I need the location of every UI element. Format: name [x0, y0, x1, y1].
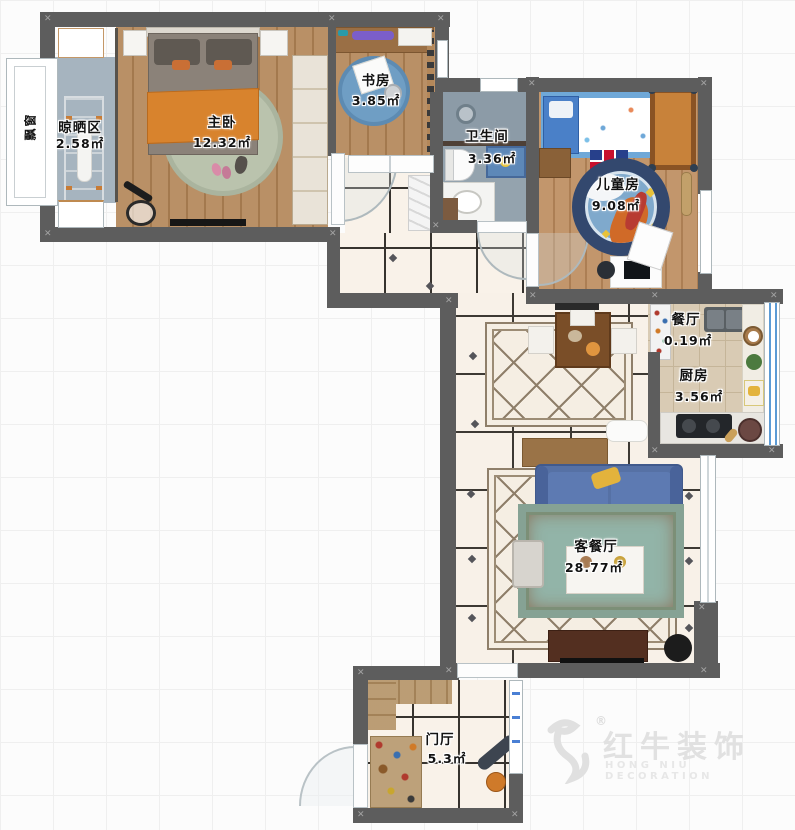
- rice-cooker: [738, 418, 762, 442]
- area-value: 2.58㎡: [56, 136, 104, 151]
- drying-window-bottom: [58, 200, 104, 228]
- golf-bag: [681, 172, 692, 216]
- study-east-window: [437, 40, 448, 78]
- wall-joint-mark: ✕: [768, 447, 776, 456]
- wall-joint-mark: ✕: [528, 80, 536, 89]
- highchair: [606, 420, 648, 442]
- dining-chair: [528, 326, 554, 354]
- desk-dumbbell: [338, 30, 348, 36]
- wall-joint-mark: ✕: [445, 667, 453, 676]
- area-value: 5.3㎡: [428, 751, 467, 766]
- window-line-master-west: [115, 28, 118, 202]
- clothes-rack: [126, 200, 156, 226]
- rack-hook: [66, 186, 72, 190]
- potted-plant: [746, 354, 762, 370]
- wall-hall-south: [330, 293, 458, 308]
- wall-joint-mark: ✕: [44, 15, 52, 24]
- sink-basin: [707, 310, 724, 329]
- area-value: 3.85㎡: [352, 93, 400, 108]
- foyer-wood-patch: [368, 680, 396, 730]
- table-setting: [586, 342, 600, 356]
- nightstand-left: [123, 30, 147, 56]
- wall-joint-mark: ✕: [445, 297, 453, 306]
- room-area-living: 28.77㎡: [565, 557, 623, 576]
- room-area-master: 12.32㎡: [193, 132, 251, 151]
- wall-kids-east-upper: [698, 77, 712, 194]
- wall-joint-mark: ✕: [357, 669, 365, 678]
- kids-bed-orange: [650, 88, 696, 170]
- wall-bath-east: [526, 77, 539, 233]
- wall-foyer-south: [353, 808, 523, 823]
- nightstand-right: [260, 30, 288, 56]
- wall-kitchen-west: [648, 352, 660, 458]
- wall-north: [40, 12, 450, 27]
- burner: [682, 419, 696, 433]
- burner: [706, 419, 720, 433]
- kids-pillow: [549, 101, 573, 118]
- area-value: 3.36㎡: [468, 151, 516, 166]
- foyer-window-tick: [512, 716, 520, 719]
- wall-joint-mark: ✕: [357, 811, 365, 820]
- area-value: 9.08㎡: [592, 198, 640, 213]
- wall-joint-mark: ✕: [44, 230, 52, 239]
- wall-master-south: [40, 227, 340, 242]
- wall-joint-mark: ✕: [651, 292, 659, 301]
- foyer-window-tick: [512, 692, 520, 695]
- room-area-bathroom: 3.36㎡: [468, 148, 516, 167]
- bathroom-north-window: [480, 78, 518, 92]
- wall-joint-mark: ✕: [329, 230, 337, 239]
- table-setting: [568, 330, 582, 342]
- bull-logo-icon: [545, 718, 601, 784]
- ottoman: [512, 540, 544, 588]
- pillow-accent: [214, 60, 232, 70]
- entry-door-leaf: [353, 744, 368, 808]
- side-table-round: [664, 634, 692, 662]
- watermark-subtitle: HONG NIU DECORATION: [605, 760, 785, 782]
- room-label-bathroom: 卫生间: [465, 125, 509, 145]
- room-label-living: 客餐厅: [574, 535, 618, 555]
- shower-head: [456, 104, 476, 124]
- wall-kids-east-lower: [698, 272, 712, 304]
- area-value: 0.19㎡: [664, 333, 712, 348]
- room-area-foyer: 5.3㎡: [428, 748, 467, 767]
- room-label-kitchen: 厨房: [680, 364, 709, 384]
- bathroom-door-threshold: [477, 221, 527, 233]
- wardrobe: [292, 55, 328, 225]
- entry-door-arc: [299, 746, 355, 806]
- wall-living-west: [440, 293, 456, 678]
- room-label-dining: 餐厅: [672, 308, 701, 328]
- area-value: 3.56㎡: [675, 389, 723, 404]
- desk-mat-purple: [352, 31, 394, 40]
- wall-joint-mark: ✕: [511, 811, 519, 820]
- wall-shelf-dark: [555, 303, 599, 310]
- dining-chair: [611, 328, 637, 354]
- room-label-kids: 儿童房: [596, 173, 640, 193]
- study-side-table: [398, 28, 432, 46]
- basketball: [486, 772, 506, 792]
- shoe-cabinet-toys: [370, 736, 422, 808]
- bay-window-label: 飘窗: [22, 112, 39, 140]
- kids-door-frame: [526, 233, 539, 287]
- area-value: 28.77㎡: [565, 560, 623, 575]
- kitchen-east-window: [764, 302, 780, 446]
- wall-joint-mark: ✕: [700, 80, 708, 89]
- kids-chair: [597, 261, 615, 279]
- area-value: 12.32㎡: [193, 135, 251, 150]
- wall-joint-mark: ✕: [651, 447, 659, 456]
- room-label-master: 主卧: [208, 111, 237, 131]
- rack-hook: [96, 186, 102, 190]
- wall-joint-mark: ✕: [437, 15, 445, 24]
- wall-partition-master-study: [328, 26, 336, 156]
- sink-basin: [726, 310, 743, 329]
- wall-joint-mark: ✕: [700, 667, 708, 676]
- room-area-dining: 0.19㎡: [664, 330, 712, 349]
- master-tv: [170, 219, 246, 226]
- sideboard: [522, 438, 608, 467]
- foyer-window-tick: [512, 740, 520, 743]
- wall-foyer-north: [353, 666, 459, 680]
- toilet-tank: [445, 149, 454, 181]
- tray-food: [748, 386, 760, 396]
- drying-window-top: [58, 28, 104, 58]
- wall-joint-mark: ✕: [529, 292, 537, 301]
- living-foyer-opening: [457, 663, 518, 678]
- kids-east-window: [700, 190, 712, 274]
- wall-joint-mark: ✕: [328, 15, 336, 24]
- master-door-frame: [331, 153, 345, 225]
- room-label-study: 书房: [362, 69, 391, 89]
- wall-joint-mark: ✕: [770, 292, 778, 301]
- bed-post: [690, 164, 698, 172]
- room-area-drying: 2.58㎡: [56, 133, 104, 152]
- room-area-kids: 9.08㎡: [592, 195, 640, 214]
- living-east-window: [700, 455, 716, 603]
- room-area-study: 3.85㎡: [352, 90, 400, 109]
- wall-joint-mark: ✕: [698, 604, 706, 613]
- wall-joint-mark: ✕: [432, 222, 440, 231]
- room-area-kitchen: 3.56㎡: [675, 386, 723, 405]
- room-label-foyer: 门厅: [426, 728, 455, 748]
- watermark: ® 红牛装饰 HONG NIU DECORATION: [545, 708, 785, 798]
- plate: [748, 331, 759, 342]
- floor-plan: PATROL: [0, 0, 795, 830]
- kids-desk-wood: [539, 148, 571, 178]
- study-sliding-door: [348, 155, 434, 173]
- pillow-accent: [172, 60, 190, 70]
